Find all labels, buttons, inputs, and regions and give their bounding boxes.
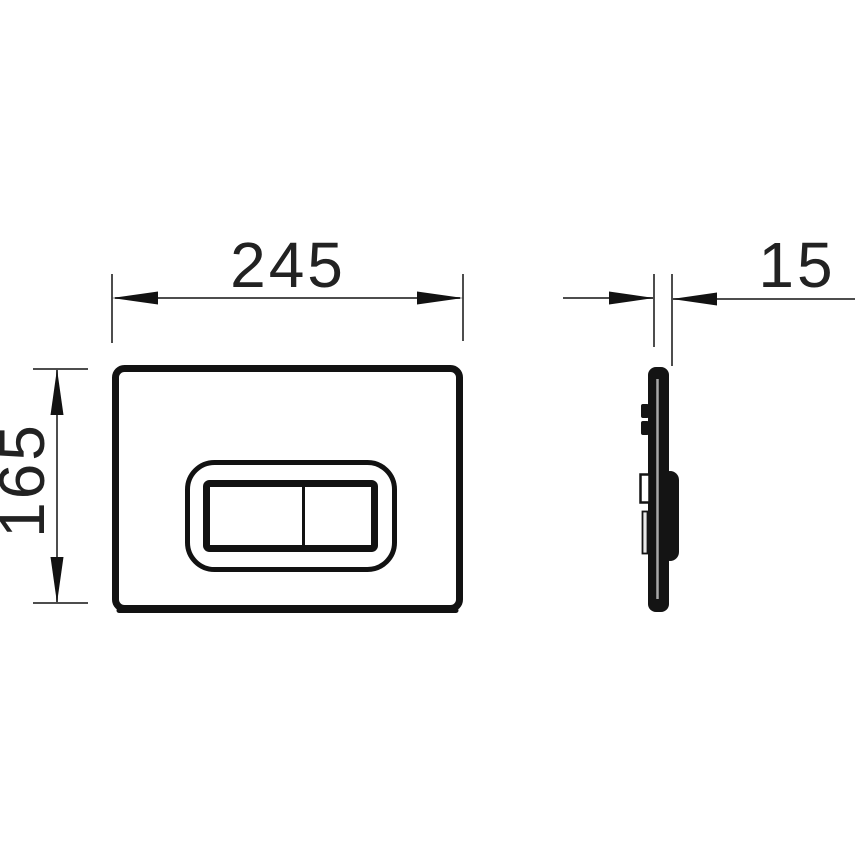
dim-width: 245 [112,229,463,343]
technical-drawing-page: 245 165 15 [0,0,855,855]
dim-height-arrow-up-icon [51,369,64,415]
side-view-clip-window [641,475,650,503]
flush-button-large [211,488,299,544]
front-view [116,369,460,611]
dim-depth: 15 [563,229,855,366]
dim-height-label: 165 [0,422,58,538]
dim-width-arrow-right-icon [417,292,463,305]
dim-height-arrow-down-icon [51,557,64,603]
side-view-button-bulge [661,471,679,561]
flush-button-small [307,488,371,544]
flush-plate-drawing: 245 165 15 [0,0,855,855]
dim-width-label: 245 [230,229,346,301]
dim-depth-arrow-left-icon [672,293,717,306]
side-view [641,367,680,612]
dim-width-arrow-left-icon [112,292,158,305]
dim-depth-label: 15 [758,229,835,301]
side-view-clip-lower [643,512,648,554]
dim-depth-arrow-right-icon [609,292,654,305]
side-view-clip-upper-b [641,421,649,435]
dim-height: 165 [0,369,88,603]
side-view-clip-upper-a [641,404,649,418]
